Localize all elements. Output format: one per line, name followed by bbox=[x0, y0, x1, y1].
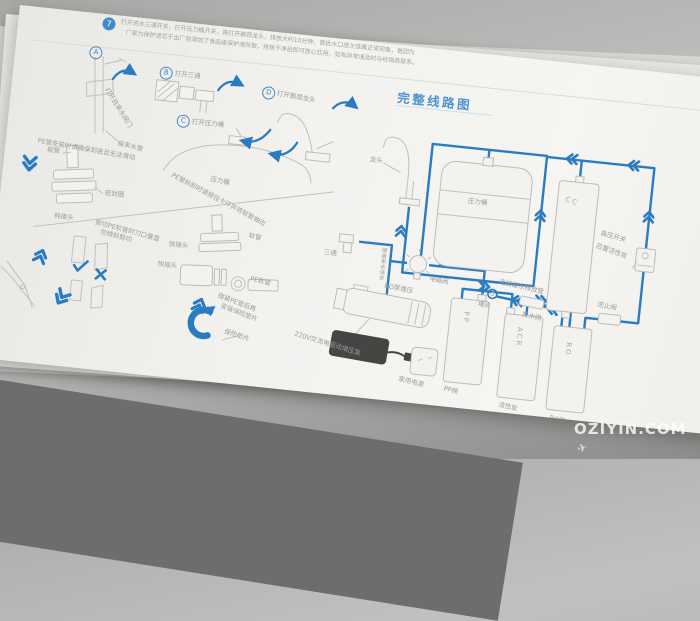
photo-of-manual: { "intro": { "badge": "7", "line1": "打开进… bbox=[0, 0, 700, 459]
down-left-arrow-icon bbox=[53, 289, 70, 306]
table-shadow bbox=[0, 372, 523, 621]
hose-label-1: 软管 bbox=[47, 147, 61, 156]
paper-plane-icon: ✈ bbox=[575, 440, 589, 456]
pressure-tank-drawing bbox=[432, 153, 534, 274]
tee-label: 三通 bbox=[323, 249, 337, 258]
tank-dome-drawing bbox=[163, 119, 316, 186]
turn-arrow-icon bbox=[113, 69, 134, 81]
up-arrow-icon bbox=[396, 226, 406, 237]
turn-arrow-icon bbox=[333, 101, 356, 110]
clamp-tool-drawing bbox=[0, 245, 74, 312]
watermark-text: OZIYIN.COM bbox=[574, 420, 687, 438]
turn-arrow-icon bbox=[218, 80, 241, 92]
turn-arrow-icon bbox=[243, 127, 270, 144]
x-icon bbox=[96, 269, 106, 279]
cc-filter-drawing bbox=[545, 174, 600, 319]
diagram-faucet-drawing bbox=[377, 136, 426, 206]
right-arrow-icon bbox=[479, 282, 490, 292]
outlet-drawing bbox=[410, 347, 439, 377]
pe-cut-demo bbox=[67, 236, 110, 309]
hp-switch-drawing bbox=[632, 248, 656, 273]
diagram-tee-drawing bbox=[338, 234, 354, 253]
faucet-label: 龙头 bbox=[369, 156, 383, 165]
watermark: OZIYIN.COM✈ bbox=[574, 420, 700, 456]
pp-label: PP bbox=[461, 311, 470, 324]
check-valve-drawing bbox=[598, 313, 621, 325]
ro-filter-drawing bbox=[546, 326, 593, 414]
ro-label: RO bbox=[563, 342, 573, 357]
up-arrow-icon bbox=[33, 249, 47, 264]
down-arrow-icon bbox=[23, 156, 36, 170]
ro-name-label: RO膜 bbox=[548, 415, 565, 426]
turn-arrow-icon bbox=[272, 140, 297, 157]
